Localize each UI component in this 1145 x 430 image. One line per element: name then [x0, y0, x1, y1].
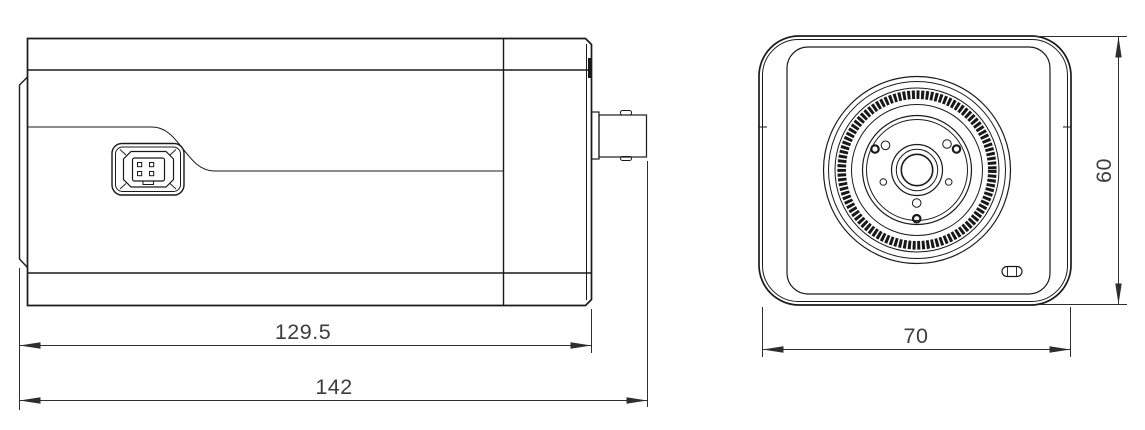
- arrowhead-top-icon: [1115, 37, 1121, 58]
- dimension-value-width: 70: [904, 324, 929, 348]
- arrowhead-right-icon: [571, 342, 592, 348]
- bnc-flange: [592, 112, 600, 159]
- bnc-connector: [592, 111, 647, 161]
- lens-barrel-circle: [892, 145, 943, 196]
- bnc-barrel: [599, 115, 647, 157]
- led-indicator-slot: [1002, 267, 1022, 277]
- lens-assembly: [824, 77, 1011, 264]
- led-slot-ticks: [1008, 267, 1017, 276]
- screw-hole: [953, 145, 960, 152]
- connector-pin: [138, 172, 142, 176]
- arrowhead-left-icon: [20, 397, 41, 403]
- dimension-body-length: 129.5: [20, 320, 592, 349]
- dimension-width: 70: [763, 324, 1071, 353]
- lens-barrel-inner-circle: [896, 149, 937, 190]
- dimension-value-height: 60: [1092, 158, 1116, 183]
- lens-aperture-circle: [901, 154, 932, 185]
- led-slot-outline: [1002, 267, 1022, 277]
- pilot-hole: [943, 140, 952, 149]
- dimension-height: 60: [1092, 37, 1122, 305]
- side-view: [20, 39, 647, 306]
- arrowhead-bottom-icon: [1115, 284, 1121, 305]
- mount-plate-inner-circle: [867, 120, 968, 221]
- connector-pin-housing: [133, 158, 165, 181]
- knurl-outer-circle: [835, 88, 999, 252]
- camera-dimension-drawing: 129.5 142: [0, 0, 1145, 430]
- drawing-canvas: 129.5 142: [0, 0, 1145, 430]
- front-view: [759, 36, 1071, 305]
- lens-mount-ring: [20, 77, 28, 268]
- accessory-connector: [112, 144, 184, 196]
- side-view-dimensions: 129.5 142: [20, 161, 648, 410]
- pilot-hole: [880, 179, 887, 186]
- screw-hole: [871, 145, 878, 152]
- front-view-dimensions: 70 60: [763, 37, 1128, 358]
- rear-screw-mark: [588, 58, 592, 78]
- body-contour-line: [28, 127, 504, 171]
- bnc-bayonet-pin-top: [621, 111, 632, 116]
- screw-hole: [913, 215, 920, 222]
- arrowhead-right-icon: [1050, 346, 1071, 352]
- pilot-hole: [912, 199, 921, 208]
- pilot-hole: [881, 141, 890, 150]
- screw-holes: [871, 140, 960, 223]
- connector-corner-ticks: [120, 150, 176, 190]
- arrowhead-left-icon: [20, 342, 41, 348]
- connector-pin: [150, 172, 154, 176]
- dimension-overall-length: 142: [20, 375, 648, 404]
- connector-octagon-shroud: [124, 152, 174, 188]
- mount-plate-outer-circle: [863, 116, 972, 225]
- pilot-hole: [945, 179, 952, 186]
- connector-pin: [138, 163, 142, 167]
- connector-pins: [138, 163, 154, 176]
- dimension-value-overall-length: 142: [315, 375, 352, 399]
- dimension-value-body-length: 129.5: [275, 320, 331, 344]
- housing-inner-outline: [763, 40, 1068, 302]
- arrowhead-right-icon: [627, 397, 648, 403]
- connector-pin: [150, 163, 154, 167]
- arrowhead-left-icon: [763, 346, 784, 352]
- lens-bezel-middle-circle: [829, 82, 1006, 259]
